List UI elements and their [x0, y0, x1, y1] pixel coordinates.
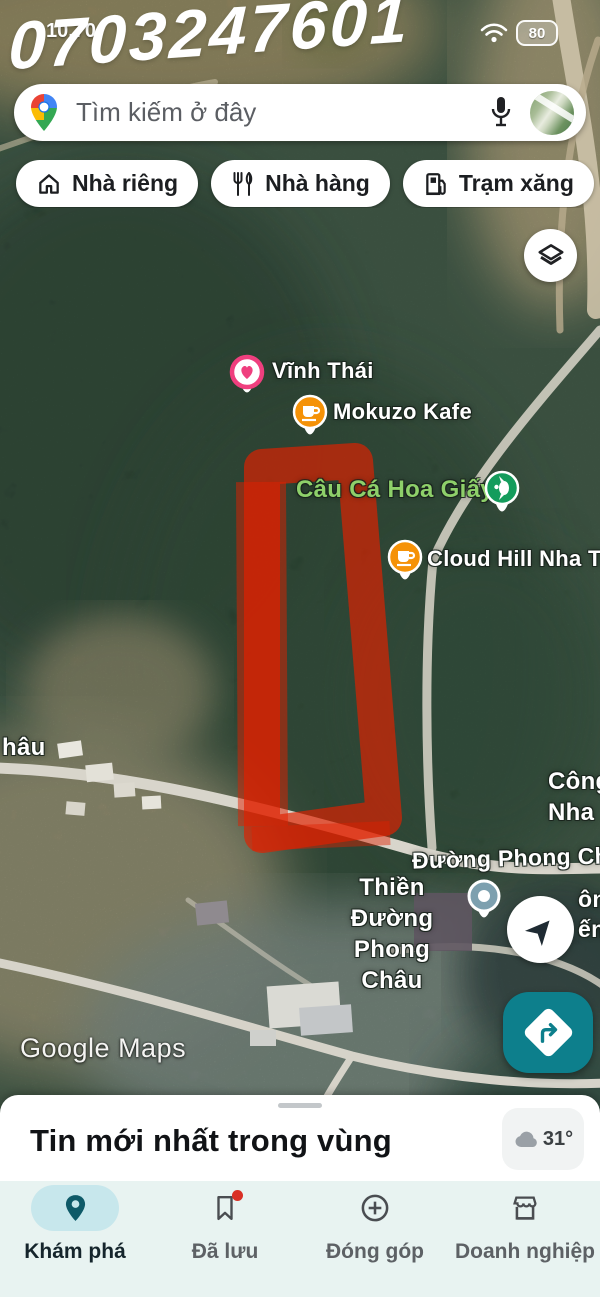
nav-label: Khám phá: [24, 1240, 126, 1264]
google-maps-pin-logo: [30, 93, 58, 133]
gas-station-icon: [423, 171, 449, 197]
contribute-plus-icon: [360, 1193, 390, 1223]
poi-label-mokuzo-kafe[interactable]: Mokuzo Kafe: [333, 399, 472, 425]
battery-icon: 80: [516, 20, 558, 46]
drag-handle[interactable]: [278, 1103, 322, 1108]
notification-badge: [232, 1190, 243, 1201]
nav-item-dong-gop[interactable]: Đóng góp: [300, 1185, 450, 1297]
temperature-value: 31°: [543, 1128, 573, 1151]
search-input[interactable]: Tìm kiếm ở đây: [76, 97, 488, 128]
poi-label-cloud-hill[interactable]: Cloud Hill Nha Tra: [427, 546, 600, 572]
poi-label-cau-ca-hoa-giay[interactable]: Câu Cá Hoa Giấy: [296, 477, 494, 503]
edge-label-cong-nha: Công Nha: [548, 766, 600, 828]
edge-label-chau: hâu: [2, 735, 46, 761]
edge-label-fragment: ôn ến: [578, 884, 600, 944]
chip-nha-rieng[interactable]: Nhà riêng: [16, 160, 198, 207]
microphone-icon[interactable]: [488, 95, 514, 131]
google-maps-attribution: Google Maps: [20, 1033, 186, 1064]
category-chips: Nhà riêng Nhà hàng Trạm xăng: [0, 160, 600, 208]
road-label-duong-phong-chau: Đường Phong Ch: [412, 842, 600, 873]
chip-label: Nhà riêng: [72, 170, 178, 197]
layers-button[interactable]: [524, 229, 577, 282]
chip-nha-hang[interactable]: Nhà hàng: [211, 160, 390, 207]
nav-item-doanh-nghiep[interactable]: Doanh nghiệp: [450, 1185, 600, 1297]
explore-pin-icon: [62, 1193, 89, 1223]
chip-tram-xang[interactable]: Trạm xăng: [403, 160, 594, 207]
bottom-navigation: Khám phá Đã lưu Đóng góp: [0, 1181, 600, 1297]
chip-label: Nhà hàng: [265, 170, 370, 197]
poi-label-vinh-thai[interactable]: Vĩnh Thái: [272, 358, 374, 384]
restaurant-icon: [231, 171, 255, 197]
nav-label: Đã lưu: [192, 1240, 259, 1264]
nav-label: Đóng góp: [326, 1240, 424, 1264]
cafe-pin[interactable]: [290, 394, 330, 444]
status-time: 10.70: [46, 20, 96, 43]
dot-pin[interactable]: [464, 878, 504, 928]
bottom-sheet-title: Tin mới nhất trong vùng: [30, 1123, 392, 1159]
my-location-button[interactable]: [507, 896, 574, 963]
navigation-arrow-icon: [524, 913, 558, 947]
cafe-pin[interactable]: [385, 539, 425, 589]
nav-item-da-luu[interactable]: Đã lưu: [150, 1185, 300, 1297]
cloud-icon: [513, 1129, 539, 1149]
phone-screen: Vĩnh Thái Mokuzo Kafe Câu Cá Hoa Giấy: [0, 0, 600, 1297]
storefront-icon: [510, 1193, 540, 1223]
nav-item-kham-pha[interactable]: Khám phá: [0, 1185, 150, 1297]
status-icons: 80: [480, 20, 558, 46]
chip-label: Trạm xăng: [459, 170, 574, 197]
directions-button[interactable]: [503, 992, 593, 1073]
wifi-icon: [480, 22, 508, 44]
home-icon: [36, 171, 62, 197]
account-avatar[interactable]: [530, 91, 574, 135]
layers-icon: [536, 241, 566, 271]
search-bar[interactable]: Tìm kiếm ở đây: [14, 84, 586, 141]
heart-pin[interactable]: [227, 354, 267, 404]
directions-icon: [522, 1006, 574, 1058]
fishing-pin[interactable]: [482, 470, 522, 520]
bottom-sheet[interactable]: Tin mới nhất trong vùng 31°: [0, 1095, 600, 1181]
poi-label-thien-duong-phong-chau[interactable]: Thiền Đường Phong Châu: [322, 872, 462, 996]
nav-label: Doanh nghiệp: [455, 1240, 595, 1264]
weather-badge[interactable]: 31°: [502, 1108, 584, 1170]
